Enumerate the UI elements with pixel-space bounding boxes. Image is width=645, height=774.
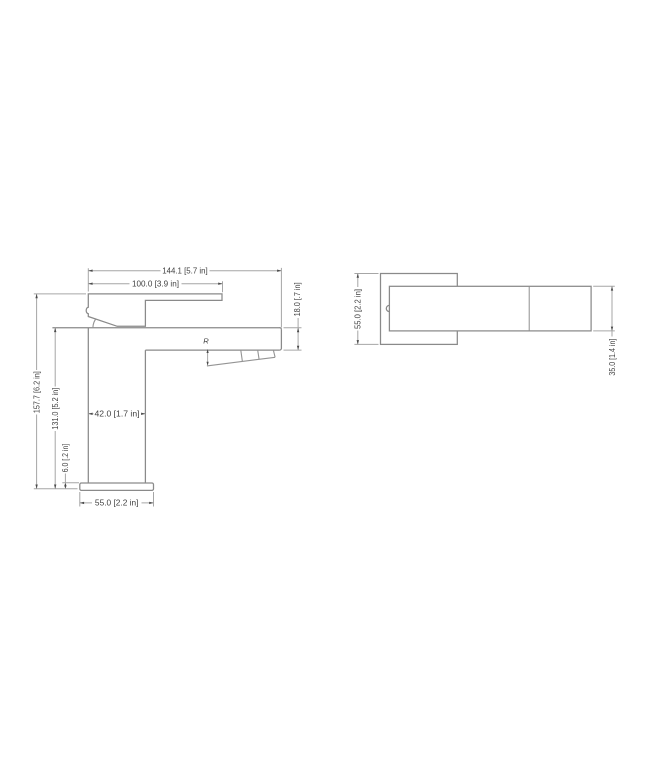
- svg-text:42.0 [1.7 in]: 42.0 [1.7 in]: [95, 410, 140, 419]
- svg-text:6.0 [.2 in]: 6.0 [.2 in]: [61, 444, 70, 473]
- svg-text:18.0 [.7 in]: 18.0 [.7 in]: [293, 282, 302, 316]
- svg-text:144.1 [5.7 in]: 144.1 [5.7 in]: [162, 267, 208, 276]
- svg-text:157.7 [6.2 in]: 157.7 [6.2 in]: [33, 371, 42, 413]
- svg-text:131.0 [5.2 in]: 131.0 [5.2 in]: [51, 388, 60, 430]
- svg-text:35.0 [1.4 in]: 35.0 [1.4 in]: [608, 339, 617, 376]
- svg-text:100.0 [3.9 in]: 100.0 [3.9 in]: [132, 280, 179, 289]
- svg-text:55.0 [2.2 in]: 55.0 [2.2 in]: [95, 499, 139, 508]
- svg-text:55.0 [2.2 in]: 55.0 [2.2 in]: [353, 289, 362, 329]
- svg-text:R: R: [203, 337, 209, 346]
